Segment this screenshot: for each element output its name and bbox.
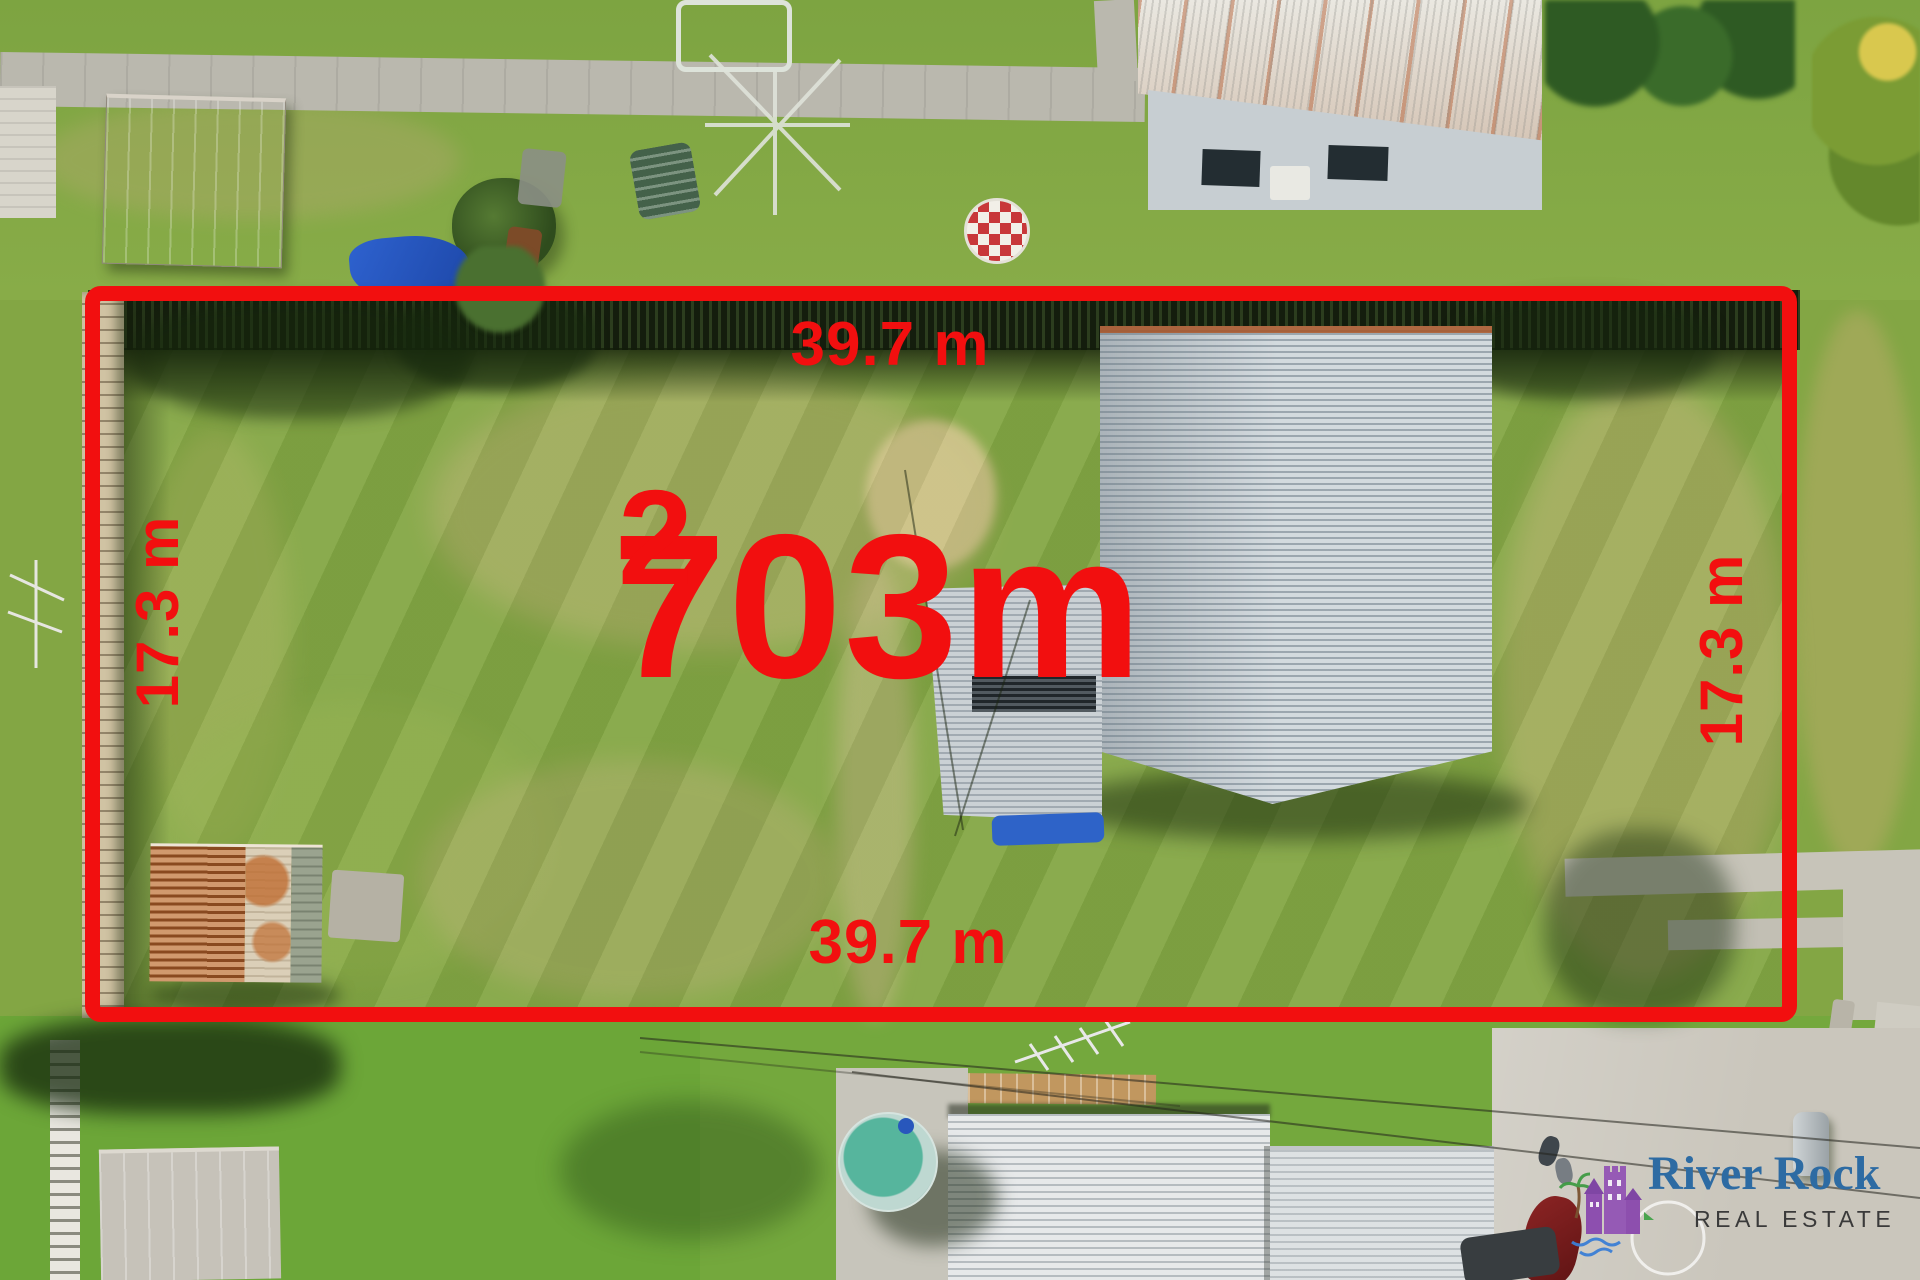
- checkered-round-table: [964, 198, 1030, 264]
- area-superscript: 2: [618, 470, 693, 605]
- grass-shadow-patch: [560, 1100, 820, 1240]
- house-window: [1201, 149, 1260, 187]
- neighbor-structure: [0, 86, 56, 218]
- aerial-photo-scene: 39.7 m 39.7 m 17.3 m 17.3 m 703m 2: [0, 0, 1920, 1280]
- garden-chair: [628, 141, 701, 221]
- hot-tub: [838, 1112, 938, 1212]
- tree: [1812, 0, 1920, 260]
- bottom-house-roof: [1270, 1146, 1494, 1280]
- dimension-label-bottom: 39.7 m: [808, 912, 1007, 974]
- garden-table: [517, 148, 567, 208]
- house-window: [1327, 145, 1388, 181]
- pool-ball: [898, 1118, 914, 1134]
- concrete-path: [1843, 854, 1920, 1020]
- trees: [1545, 0, 1795, 140]
- rotary-clothesline: [690, 30, 890, 230]
- paver-path: [968, 1073, 1156, 1105]
- agency-name: River Rock: [1648, 1150, 1880, 1198]
- left-clothesline: [8, 560, 64, 668]
- dimension-label-right: 17.3 m: [1692, 554, 1752, 747]
- dimension-label-left: 17.3 m: [128, 516, 188, 709]
- agency-tagline: REAL ESTATE: [1694, 1208, 1895, 1231]
- neighbor-shed-roof: [102, 94, 286, 269]
- dimension-label-top: 39.7 m: [790, 314, 989, 376]
- dry-grass-patch: [1795, 310, 1920, 870]
- hedge-shadow: [0, 1018, 340, 1114]
- neighbor-shed-roof: [99, 1146, 281, 1280]
- ac-unit: [1270, 166, 1310, 200]
- concrete-path-branch: [1094, 0, 1138, 83]
